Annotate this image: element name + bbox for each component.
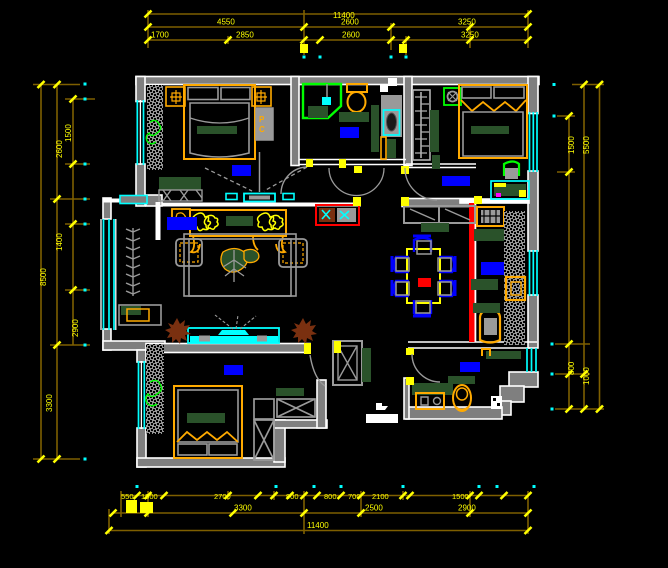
svg-text:11400: 11400 [307,521,329,530]
svg-text:800: 800 [324,492,337,501]
svg-text:900: 900 [286,492,299,501]
svg-text:3250: 3250 [461,31,479,40]
svg-text:3300: 3300 [45,394,54,412]
svg-text:550: 550 [121,492,134,501]
svg-text:1400: 1400 [55,233,64,251]
svg-text:1500: 1500 [64,124,73,142]
svg-text:700: 700 [348,492,361,501]
svg-text:3300: 3300 [234,504,252,513]
svg-text:4550: 4550 [217,18,235,27]
svg-text:8500: 8500 [39,268,48,286]
svg-text:2600: 2600 [341,18,359,27]
svg-text:2850: 2850 [236,31,254,40]
svg-text:2500: 2500 [365,504,383,513]
svg-text:2900: 2900 [71,319,80,337]
svg-text:5500: 5500 [582,136,591,154]
svg-text:1500: 1500 [567,136,576,154]
svg-text:1500: 1500 [141,492,158,501]
svg-text:2600: 2600 [55,140,64,158]
svg-text:2900: 2900 [458,504,476,513]
svg-text:3250: 3250 [458,18,476,27]
svg-text:2100: 2100 [372,492,389,501]
svg-text:1000: 1000 [582,367,591,385]
svg-text:2700: 2700 [214,492,231,501]
svg-text:800: 800 [567,361,576,375]
svg-text:2600: 2600 [342,31,360,40]
svg-text:P: P [259,115,265,124]
svg-text:1500: 1500 [452,492,469,501]
svg-text:1700: 1700 [151,31,169,40]
svg-text:C: C [259,125,265,134]
